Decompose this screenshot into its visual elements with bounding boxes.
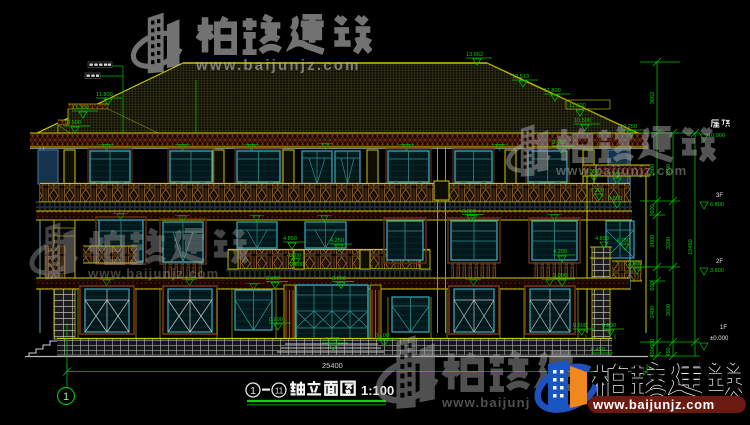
svg-text:3.600: 3.600 <box>710 268 724 274</box>
svg-text:4.000: 4.000 <box>287 253 301 259</box>
svg-text:2000: 2000 <box>650 235 656 247</box>
svg-text:450: 450 <box>666 347 672 356</box>
svg-text:3.000: 3.000 <box>553 273 567 279</box>
svg-text:450600: 450600 <box>650 339 656 358</box>
svg-text:0.600: 0.600 <box>573 323 587 329</box>
svg-text:3.600: 3.600 <box>290 262 304 268</box>
svg-text:0.450: 0.450 <box>591 347 605 353</box>
svg-text:10.500: 10.500 <box>64 120 81 126</box>
svg-text:±0.000: ±0.000 <box>710 336 729 342</box>
svg-text:4.850: 4.850 <box>595 236 609 242</box>
svg-text:4.250: 4.250 <box>330 238 344 244</box>
svg-text:1: 1 <box>63 391 69 403</box>
svg-text:4.750: 4.750 <box>616 238 630 244</box>
svg-text:0.900: 0.900 <box>269 317 283 323</box>
svg-text:1: 1 <box>250 386 256 397</box>
svg-text:600: 600 <box>650 204 656 213</box>
svg-text:11.300: 11.300 <box>569 103 586 109</box>
svg-text:www.baijunjz.com: www.baijunjz.com <box>555 163 687 178</box>
svg-text:25400: 25400 <box>322 361 343 370</box>
svg-text:13.662: 13.662 <box>466 52 483 58</box>
svg-text:3.600: 3.600 <box>628 261 642 267</box>
svg-text:11.800: 11.800 <box>96 92 113 98</box>
svg-text:3662: 3662 <box>650 92 656 104</box>
svg-text:6.200: 6.200 <box>462 209 476 215</box>
svg-text:±0.000: ±0.000 <box>322 337 339 343</box>
svg-text:4.850: 4.850 <box>283 236 297 242</box>
svg-text:1F: 1F <box>720 325 727 331</box>
svg-text:600: 600 <box>650 281 656 290</box>
svg-text:12.513: 12.513 <box>512 74 529 80</box>
svg-text:11.800: 11.800 <box>544 88 561 94</box>
svg-text:3600: 3600 <box>666 304 672 316</box>
svg-text:www.baijunjz.com: www.baijunjz.com <box>87 266 219 281</box>
svg-text:11: 11 <box>275 387 284 396</box>
svg-text:10.500: 10.500 <box>574 118 591 124</box>
svg-text:7.200: 7.200 <box>590 188 604 194</box>
svg-text:3200: 3200 <box>666 237 672 249</box>
svg-text:4.200: 4.200 <box>553 249 567 255</box>
svg-text:11.300: 11.300 <box>72 105 89 111</box>
svg-text:3.000: 3.000 <box>332 276 346 282</box>
svg-text:3F: 3F <box>716 193 723 199</box>
svg-text:2F: 2F <box>716 259 723 265</box>
svg-text:www.baijunjz.com: www.baijunjz.com <box>195 57 361 74</box>
svg-text:2400: 2400 <box>650 306 656 318</box>
svg-text:www.baijunj: www.baijunj <box>441 395 531 410</box>
svg-text:3.000: 3.000 <box>266 276 280 282</box>
svg-text:0.600: 0.600 <box>602 323 616 329</box>
svg-text:0.100: 0.100 <box>375 333 389 339</box>
svg-text:6.800: 6.800 <box>710 202 724 208</box>
svg-text:10450: 10450 <box>688 239 694 255</box>
svg-text:www.baijunjz.com: www.baijunjz.com <box>592 397 715 412</box>
svg-text:6.800: 6.800 <box>608 196 622 202</box>
